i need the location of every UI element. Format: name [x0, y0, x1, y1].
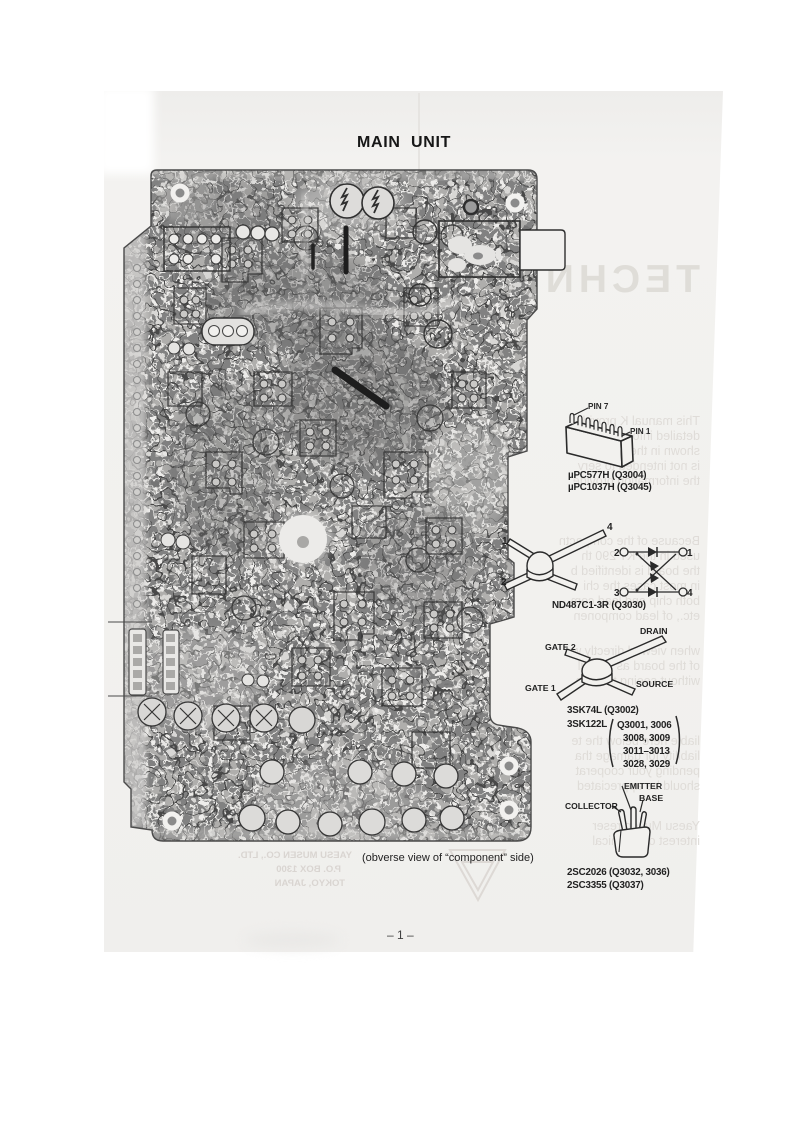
- svg-text:PIN 7: PIN 7: [588, 402, 609, 411]
- svg-text:4: 4: [687, 588, 693, 599]
- svg-text:BASE: BASE: [639, 793, 663, 803]
- svg-text:ND487C1-3R (Q3030): ND487C1-3R (Q3030): [552, 600, 646, 611]
- svg-text:PIN 1: PIN 1: [630, 427, 651, 436]
- svg-text:3SK122L: 3SK122L: [567, 719, 607, 730]
- svg-text:2: 2: [614, 548, 620, 559]
- svg-text:etc., of lead componen: etc., of lead componen: [573, 609, 700, 623]
- svg-text:COLLECTOR: COLLECTOR: [565, 801, 618, 811]
- svg-text:2SC3355 (Q3037): 2SC3355 (Q3037): [567, 880, 644, 891]
- svg-text:2SC2026 (Q3032, 3036): 2SC2026 (Q3032, 3036): [567, 867, 670, 878]
- svg-text:– 1 –: – 1 –: [387, 928, 414, 942]
- svg-text:YAESU MUSEN CO., LTD.: YAESU MUSEN CO., LTD.: [238, 850, 352, 861]
- svg-text:3: 3: [614, 588, 620, 599]
- svg-text:(obverse view of “component” s: (obverse view of “component” side): [362, 852, 534, 864]
- svg-text:4: 4: [607, 522, 613, 533]
- svg-text:3011–3013: 3011–3013: [623, 746, 670, 757]
- svg-text:Q3001, 3006: Q3001, 3006: [617, 720, 672, 731]
- svg-text:SOURCE: SOURCE: [636, 679, 673, 689]
- svg-text:3028, 3029: 3028, 3029: [623, 759, 671, 770]
- svg-text:MAIN UNIT: MAIN UNIT: [357, 134, 451, 151]
- svg-text:1: 1: [502, 536, 508, 547]
- svg-text:GATE 2: GATE 2: [545, 642, 576, 652]
- svg-text:µPC1037H (Q3045): µPC1037H (Q3045): [568, 482, 652, 493]
- svg-text:µPC577H (Q3004): µPC577H (Q3004): [568, 470, 646, 481]
- svg-text:1: 1: [687, 548, 693, 559]
- svg-text:P.O. BOX 1300: P.O. BOX 1300: [276, 864, 341, 875]
- svg-text:3008, 3009: 3008, 3009: [623, 733, 671, 744]
- svg-text:This manual K provid: This manual K provid: [583, 414, 700, 428]
- svg-text:TOKYO, JAPAN: TOKYO, JAPAN: [274, 878, 345, 889]
- svg-text:GATE 1: GATE 1: [525, 683, 556, 693]
- svg-text:3SK74L (Q3002): 3SK74L (Q3002): [567, 705, 639, 716]
- svg-text:DRAIN: DRAIN: [640, 626, 668, 636]
- svg-text:2: 2: [501, 577, 507, 588]
- svg-text:EMITTER: EMITTER: [624, 781, 663, 791]
- svg-text:the board is identified b: the board is identified b: [571, 564, 700, 578]
